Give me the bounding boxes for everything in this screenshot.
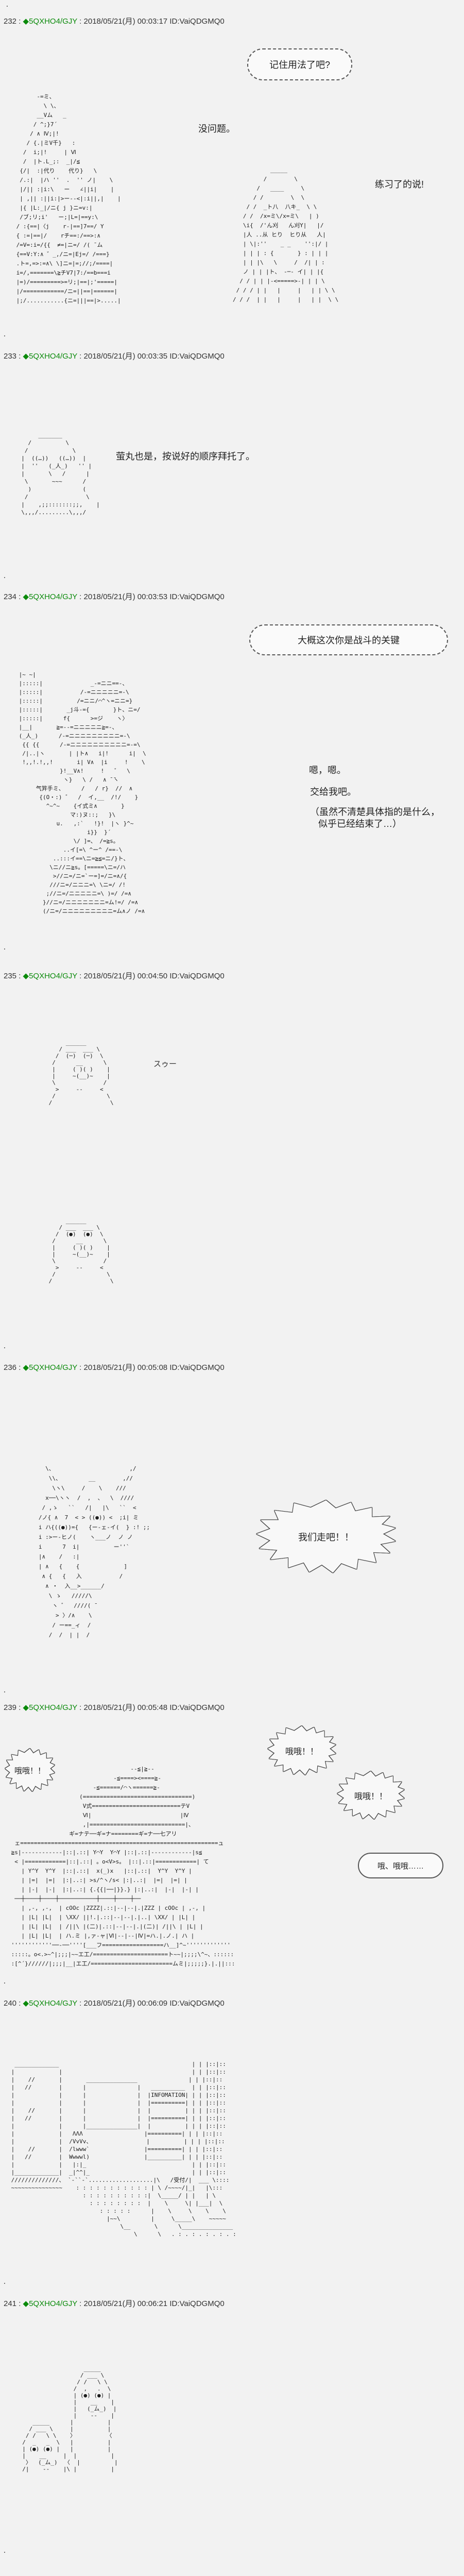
- post-number: 232: [4, 17, 16, 26]
- separator-dot: .: [3, 1687, 7, 1694]
- separator-dot: .: [3, 1978, 7, 1986]
- speech-bubble: 记住用法了吧?: [247, 48, 352, 80]
- shout-bubble: 哦哦！！: [268, 1726, 336, 1775]
- post-meta: 2018/05/21(月) 00:03:35 ID:VaiQDGMQ0: [84, 352, 225, 361]
- post-number: 241: [4, 2299, 16, 2308]
- post-tripcode: ◆5QXHO4/GJY: [23, 352, 77, 361]
- shout-bubble: 我们走吧！！: [256, 1500, 396, 1573]
- ascii-art-seal: _______ / \ / \ | ((…)) ((…)) | | '' (_人…: [14, 431, 100, 516]
- ascii-art-sleeping-face: ______ / ___ ___ \ / (─) (─) \ / __ \ | …: [45, 1039, 113, 1106]
- post-meta: 2018/05/21(月) 00:03:17 ID:VaiQDGMQ0: [84, 17, 225, 26]
- ascii-art-reception-hall: _____________ | | |::|:: | | | | |::|:: …: [8, 2060, 236, 2238]
- separator-dot: .: [3, 2547, 7, 2555]
- post-number: 236: [4, 1363, 16, 1372]
- ascii-art-two-creatures: _____ / ___ \ / / \ \ / , . \ | (●) (●) …: [15, 2365, 118, 2472]
- post-header-236: 236 : ◆5QXHO4/GJY : 2018/05/21(月) 00:05:…: [4, 1362, 225, 1372]
- post-header-239: 239 : ◆5QXHO4/GJY : 2018/05/21(月) 00:05:…: [4, 1702, 225, 1713]
- speech-bubble: 哦、哦哦……: [358, 1853, 443, 1878]
- post-meta: 2018/05/21(月) 00:03:53 ID:VaiQDGMQ0: [84, 592, 225, 601]
- separator-dot: .: [3, 331, 7, 338]
- post-number: 239: [4, 1703, 16, 1712]
- post-number: 233: [4, 352, 16, 361]
- post-meta: 2018/05/21(月) 00:04:50 ID:VaiQDGMQ0: [84, 972, 225, 980]
- dialogue: 没问题。: [198, 122, 235, 135]
- post-tripcode: ◆5QXHO4/GJY: [23, 592, 77, 601]
- dialogue: 我们走吧！！: [298, 1530, 354, 1544]
- post-tripcode: ◆5QXHO4/GJY: [23, 1703, 77, 1712]
- dialogue: 似乎已经结束了…）: [318, 817, 402, 830]
- post-tripcode: ◆5QXHO4/GJY: [23, 1363, 77, 1372]
- dialogue: 哦哦！！: [285, 1744, 318, 1757]
- post-tripcode: ◆5QXHO4/GJY: [23, 17, 77, 26]
- post-header-234: 234 : ◆5QXHO4/GJY : 2018/05/21(月) 00:03:…: [4, 591, 225, 602]
- post-tripcode: ◆5QXHO4/GJY: [23, 972, 77, 980]
- ascii-art-girl: -=ミ、 \ \、 __Vム _ / ^;}7´ / ∧ Ⅳ;|! / {.|ミ…: [13, 92, 121, 306]
- post-meta: 2018/05/21(月) 00:06:09 ID:VaiQDGMQ0: [84, 1999, 225, 2008]
- dialogue: 嗯，嗯。: [309, 763, 346, 776]
- post-header-241: 241 : ◆5QXHO4/GJY : 2018/05/21(月) 00:06:…: [4, 2298, 225, 2309]
- post-header-235: 235 : ◆5QXHO4/GJY : 2018/05/21(月) 00:04:…: [4, 970, 225, 981]
- post-header-233: 233 : ◆5QXHO4/GJY : 2018/05/21(月) 00:03:…: [4, 350, 225, 361]
- dialogue: 哦、哦哦……: [377, 1860, 424, 1871]
- separator-dot: .: [5, 1, 9, 9]
- sound-effect: スゥー: [153, 1058, 177, 1069]
- post-header-240: 240 : ◆5QXHO4/GJY : 2018/05/21(月) 00:06:…: [4, 1997, 225, 2008]
- post-number: 234: [4, 592, 16, 601]
- dialogue: 交给我吧。: [310, 785, 356, 798]
- separator-dot: .: [3, 944, 7, 952]
- post-meta: 2018/05/21(月) 00:06:21 ID:VaiQDGMQ0: [84, 2299, 225, 2308]
- dialogue: 大概这次你是战斗的关键: [298, 633, 400, 647]
- ascii-art-excited-face: \、 ,/ \\、 __ ,// \ヽ\ / \ /// x──\ヽヽ / , …: [28, 1464, 150, 1640]
- dialogue: 记住用法了吧?: [269, 58, 330, 71]
- shout-bubble: 哦哦！！: [337, 1771, 404, 1820]
- post-meta: 2018/05/21(月) 00:05:48 ID:VaiQDGMQ0: [84, 1703, 225, 1712]
- separator-dot: .: [3, 2278, 7, 2286]
- dialogue: 哦哦！！: [354, 1789, 387, 1802]
- separator-dot: .: [3, 572, 7, 580]
- post-meta: 2018/05/21(月) 00:05:08 ID:VaiQDGMQ0: [84, 1363, 225, 1372]
- speech-bubble: 大概这次你是战斗的关键: [249, 624, 448, 655]
- post-number: 235: [4, 972, 16, 980]
- ascii-art-mecha: |~ ~| |:::::| _-=ニニ==-、 |:::::| /-=ニニニニニ…: [15, 670, 146, 916]
- post-tripcode: ◆5QXHO4/GJY: [23, 2299, 77, 2308]
- dialogue: 练习了的说!: [375, 177, 424, 191]
- separator-dot: .: [3, 1343, 7, 1350]
- post-header-232: 232 : ◆5QXHO4/GJY : 2018/05/21(月) 00:03:…: [4, 15, 225, 26]
- post-number: 240: [4, 1999, 16, 2008]
- post-tripcode: ◆5QXHO4/GJY: [23, 1999, 77, 2008]
- ascii-art-creature: _____ / \ / ____ \ / / \ \ / / _ト八 八キ_ \…: [233, 165, 338, 304]
- thread-page: . . . . . . . . . . . . 232 : ◆5QXHO4/GJ…: [0, 0, 464, 2576]
- dialogue: 萤丸也是，按说好的顺序拜托了。: [116, 449, 255, 463]
- ascii-art-building: --≦|≧-- -≦====><====≧- -≦======/⌒ヽ======…: [8, 1765, 235, 1969]
- ascii-art-awake-face: ______ / ___ ___ \ / (●) (●) \ / __ \ | …: [45, 1217, 113, 1284]
